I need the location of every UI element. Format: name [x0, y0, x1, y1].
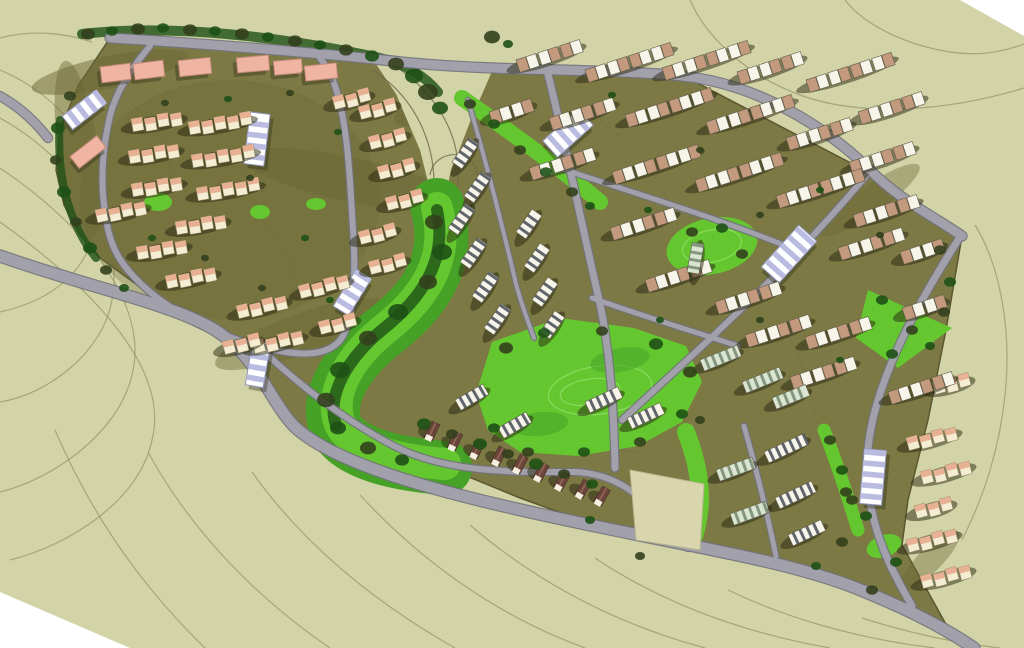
tree — [586, 479, 598, 489]
tree — [906, 325, 918, 335]
tree — [934, 245, 946, 255]
tree — [100, 265, 112, 275]
tree — [886, 349, 898, 359]
tree — [314, 40, 326, 50]
tree — [330, 362, 350, 378]
cleared-parcel — [630, 470, 704, 550]
tree — [514, 145, 526, 155]
tree — [161, 100, 169, 106]
tree — [836, 537, 848, 547]
building-salmon-block — [300, 63, 338, 86]
building-roof — [133, 60, 165, 80]
tree — [683, 366, 697, 377]
tree — [418, 84, 438, 100]
tree — [106, 26, 118, 36]
tree — [816, 187, 824, 193]
tree — [585, 516, 595, 524]
green-space — [306, 198, 326, 210]
tree — [578, 447, 590, 457]
tree — [388, 58, 404, 71]
building-roof — [273, 59, 302, 75]
tree — [716, 223, 728, 233]
building-salmon-block — [129, 60, 165, 84]
tree — [824, 435, 836, 445]
tree — [635, 552, 645, 560]
tree — [201, 255, 209, 261]
tree — [317, 393, 335, 407]
tree — [405, 69, 423, 83]
building-salmon-block — [232, 55, 270, 77]
building-roof — [100, 63, 132, 83]
tree — [644, 207, 652, 213]
tree — [446, 429, 458, 439]
tree — [81, 28, 95, 39]
tree — [258, 285, 266, 291]
tree — [925, 342, 935, 350]
tree — [262, 32, 274, 42]
tree — [432, 102, 448, 115]
tree — [836, 465, 848, 475]
tree — [686, 227, 698, 237]
tree — [425, 215, 443, 229]
tree — [558, 469, 570, 479]
tree — [51, 122, 65, 133]
tree — [876, 232, 884, 238]
tree — [365, 50, 379, 61]
tree — [938, 307, 950, 317]
tree — [502, 449, 514, 459]
tree — [736, 249, 748, 259]
tree — [840, 487, 852, 497]
tree — [649, 338, 663, 349]
tree — [224, 96, 232, 102]
tree — [339, 44, 353, 55]
tree — [846, 495, 858, 505]
tree — [464, 99, 476, 109]
tree — [566, 187, 578, 197]
tree — [540, 167, 552, 177]
tree — [360, 442, 376, 455]
building-roof — [304, 63, 337, 81]
tree — [57, 186, 71, 197]
building-lavender-apartment — [859, 449, 890, 510]
tree — [695, 416, 705, 424]
tree — [183, 24, 197, 35]
tree — [811, 562, 821, 570]
tree — [836, 357, 844, 363]
tree — [676, 409, 688, 419]
tree — [538, 328, 550, 338]
tree — [890, 557, 902, 567]
tree — [522, 447, 534, 457]
tree — [756, 317, 764, 323]
building-roof — [178, 57, 211, 76]
tree — [246, 175, 254, 181]
tree — [499, 342, 513, 353]
building-roof — [236, 55, 269, 73]
tree — [876, 295, 888, 305]
tree — [388, 304, 408, 320]
tree — [157, 23, 169, 33]
tree — [50, 155, 62, 165]
tree — [131, 23, 145, 34]
building-salmon-block — [269, 59, 302, 80]
building-salmon-block — [174, 57, 212, 81]
tree — [596, 326, 608, 336]
tree — [484, 31, 500, 44]
site-plan-svg — [0, 0, 1024, 648]
tree — [326, 297, 334, 303]
tree — [419, 275, 437, 289]
tree — [585, 202, 595, 210]
tree — [330, 422, 346, 435]
tree — [473, 438, 487, 449]
tree — [148, 235, 156, 241]
tree — [286, 90, 294, 96]
green-space — [250, 205, 270, 219]
tree — [634, 437, 646, 447]
tree — [288, 35, 302, 46]
tree — [83, 242, 97, 253]
tree — [70, 217, 82, 227]
tree — [64, 91, 76, 101]
tree — [395, 454, 409, 465]
tree — [235, 28, 249, 39]
tree — [866, 585, 878, 595]
tree — [301, 235, 309, 241]
tree — [119, 284, 129, 292]
tree — [860, 511, 872, 521]
tree — [656, 317, 664, 323]
tree — [432, 244, 452, 260]
tree — [359, 331, 377, 345]
building-salmon-block — [96, 63, 132, 87]
tree — [608, 92, 616, 98]
master-plan-rendering — [0, 0, 1024, 648]
tree — [488, 423, 500, 433]
tree — [529, 458, 543, 469]
tree — [696, 147, 704, 153]
tree — [417, 418, 431, 429]
tree — [209, 26, 221, 36]
tree — [944, 277, 956, 287]
tree — [503, 40, 513, 48]
tree — [334, 129, 342, 135]
tree — [488, 119, 500, 129]
tree — [756, 212, 764, 218]
